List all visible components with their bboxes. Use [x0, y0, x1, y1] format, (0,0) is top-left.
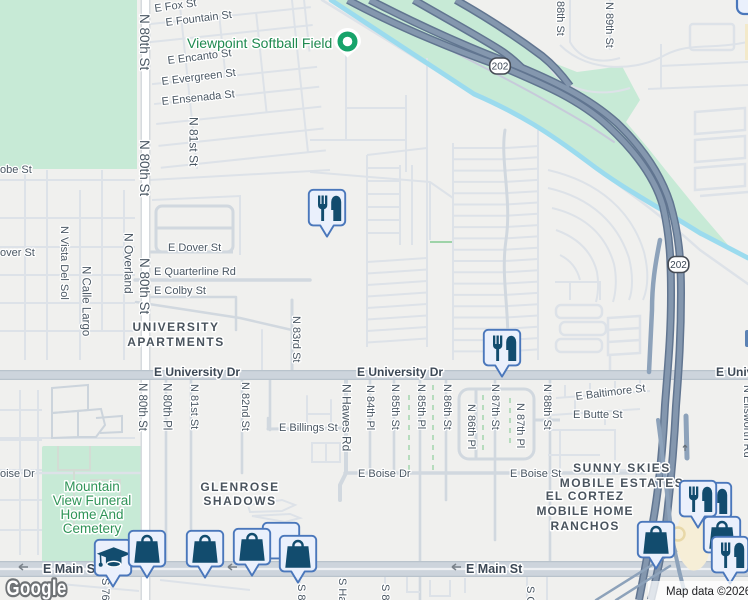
svg-text:N 80th St: N 80th St	[136, 383, 148, 432]
svg-text:S Golden: S Golden	[524, 586, 536, 600]
svg-text:Viewpoint Softball Field: Viewpoint Softball Field	[187, 35, 332, 51]
svg-text:RANCHOS: RANCHOS	[550, 519, 619, 533]
svg-text:Map data ©2026: Map data ©2026	[666, 586, 748, 598]
svg-text:SHADOWS: SHADOWS	[203, 494, 276, 508]
svg-text:N 86th St: N 86th St	[441, 384, 453, 430]
svg-text:E Dover St: E Dover St	[168, 242, 221, 254]
svg-text:View Funeral: View Funeral	[53, 493, 132, 508]
svg-text:E University Dr: E University Dr	[357, 365, 443, 379]
svg-text:UNIVERSITY: UNIVERSITY	[132, 320, 219, 334]
svg-text:N 88th St: N 88th St	[541, 384, 553, 430]
svg-text:MOBILE ESTATES: MOBILE ESTATES	[560, 476, 685, 490]
svg-text:Cemetery: Cemetery	[63, 521, 122, 536]
svg-text:N 85th Pl: N 85th Pl	[415, 384, 427, 429]
svg-text:E Butte St: E Butte St	[573, 409, 623, 421]
svg-text:Mountain: Mountain	[64, 479, 120, 494]
svg-text:S 80th St: S 80th St	[295, 584, 307, 600]
svg-text:N Calle Largo: N Calle Largo	[80, 266, 92, 336]
svg-text:SUNNY SKIES: SUNNY SKIES	[573, 461, 671, 475]
svg-text:obe St: obe St	[0, 164, 32, 176]
svg-text:S 84th: S 84th	[379, 584, 391, 600]
svg-text:N 85th St: N 85th St	[389, 384, 401, 430]
svg-text:E Main St: E Main St	[43, 562, 100, 576]
svg-text:E University Dr: E University Dr	[154, 365, 240, 379]
svg-text:N 87th Pl: N 87th Pl	[514, 403, 526, 448]
svg-text:E University Dr: E University Dr	[716, 365, 748, 379]
svg-text:over St: over St	[0, 247, 35, 259]
svg-text:N 82nd St: N 82nd St	[239, 382, 251, 431]
svg-text:oise Dr: oise Dr	[0, 468, 35, 480]
svg-text:N 80th St: N 80th St	[137, 258, 152, 315]
svg-text:N 86th Pl: N 86th Pl	[465, 404, 477, 449]
svg-text:88th St: 88th St	[554, 1, 566, 36]
svg-text:N Ellsworth Rd: N Ellsworth Rd	[741, 385, 748, 458]
svg-text:Home And: Home And	[60, 507, 123, 522]
svg-text:N 81st St: N 81st St	[187, 117, 201, 167]
svg-text:E Boise St: E Boise St	[510, 468, 561, 480]
svg-text:N 80th Pl: N 80th Pl	[161, 383, 173, 430]
svg-text:N 80th St: N 80th St	[137, 140, 152, 197]
svg-text:N 83rd St: N 83rd St	[290, 316, 302, 362]
svg-text:N Hawes Rd: N Hawes Rd	[340, 384, 354, 451]
svg-text:GLENROSE: GLENROSE	[200, 480, 279, 494]
svg-text:E Colby St: E Colby St	[154, 285, 206, 297]
svg-text:Google: Google	[7, 577, 67, 600]
svg-text:202: 202	[492, 62, 509, 73]
svg-text:N Vista Del Sol: N Vista Del Sol	[58, 226, 70, 300]
svg-text:S Hawes Rd: S Hawes Rd	[336, 578, 348, 600]
svg-text:N Overland: N Overland	[122, 233, 136, 294]
svg-text:N 89th St: N 89th St	[603, 2, 615, 48]
svg-text:N 81st St: N 81st St	[188, 384, 200, 429]
svg-text:EL CORTEZ: EL CORTEZ	[546, 489, 625, 503]
svg-text:E Boise Dr: E Boise Dr	[358, 468, 411, 480]
svg-text:E Main St: E Main St	[466, 562, 523, 576]
svg-text:N 87th St: N 87th St	[489, 384, 501, 430]
svg-text:APARTMENTS: APARTMENTS	[127, 335, 224, 349]
svg-text:N 80th St: N 80th St	[137, 14, 152, 71]
svg-text:E Billings St: E Billings St	[279, 422, 338, 434]
svg-text:N 84th Pl: N 84th Pl	[364, 385, 376, 430]
svg-text:MOBILE HOME: MOBILE HOME	[537, 504, 634, 518]
svg-text:E Quarterline Rd: E Quarterline Rd	[154, 266, 236, 278]
svg-text:202: 202	[670, 260, 687, 271]
